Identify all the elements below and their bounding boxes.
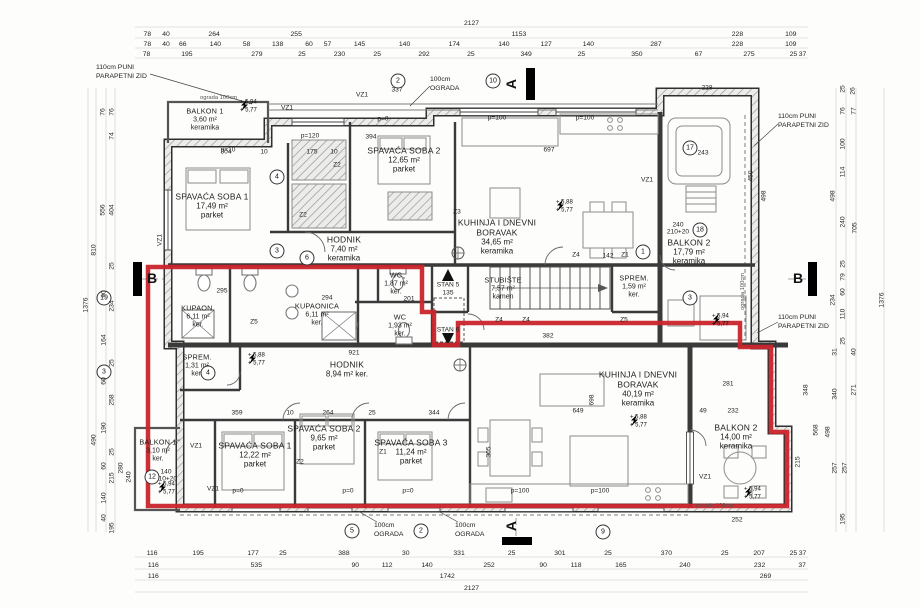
room-ar: 1,87 m² — [368, 280, 424, 288]
plan-label: 10 — [330, 149, 337, 156]
dimension-value: 60 — [840, 288, 847, 296]
plan-label: 697 — [543, 147, 554, 154]
dimension-value: 269 — [760, 573, 771, 580]
dimension-value: 77 — [851, 107, 858, 115]
plan-label: p=0 — [342, 488, 353, 495]
level-bolt-icon — [630, 415, 639, 427]
room-ar: 14,00 m² — [691, 433, 781, 442]
section-marker-a-top: A — [503, 79, 519, 89]
room-nm: BALKON 2 — [644, 238, 734, 248]
dimension-value: 25 — [467, 51, 475, 58]
dimension-value: 2127 — [464, 585, 479, 592]
dimension-value: 100 — [840, 138, 847, 149]
room-ar: 17,49 m² — [167, 202, 257, 211]
room-ar: 8,94 m² ker. — [302, 369, 392, 378]
plan-label: p=100 — [591, 488, 610, 495]
room-ar: 17,79 m² — [644, 248, 734, 257]
dimension-value: 140 — [498, 41, 509, 48]
plan-label: p=0 — [377, 116, 388, 123]
plan-label: VZ1 — [356, 92, 368, 99]
dimension-value: 109 — [785, 31, 796, 38]
dimension-value: 280 — [118, 462, 125, 473]
room-label: BALKON 13,60 m²keramika — [177, 107, 233, 132]
dimension-value: 112 — [382, 562, 393, 569]
section-marker-a-top-bar — [526, 68, 535, 100]
dimension-value: 25 — [840, 260, 847, 268]
dimension-value: 490 — [91, 434, 98, 445]
room-ar: 40,19 m² — [593, 390, 683, 399]
dimension-value: 90 — [101, 290, 108, 298]
plan-label: VZ1 — [281, 105, 293, 112]
annotation: 100cm OGRADA — [374, 522, 403, 540]
plan-label: 394 — [365, 134, 376, 141]
plan-label: Z2 — [299, 212, 307, 219]
plan-label: Z2 — [296, 459, 304, 466]
dimension-value: 404 — [109, 204, 116, 215]
room-label: SPREM.1,31 m²ker. — [169, 353, 225, 378]
room-fl: keramika — [593, 399, 683, 408]
dimension-value: 810 — [91, 244, 98, 255]
plan-label: 142 — [602, 253, 613, 260]
level-bolt-icon — [240, 100, 249, 112]
dimension-value: 190 — [101, 422, 108, 433]
position-circle: 2 — [414, 524, 429, 539]
room-nm: SPREM. — [606, 274, 662, 283]
position-circle: 18 — [693, 223, 708, 238]
dimension-value: 37 — [799, 51, 807, 58]
level-marker: + 5,94 + 5,77 — [744, 487, 761, 502]
room-label: SPAVAĆA SOBA 117,49 m²parket — [167, 192, 257, 221]
dimension-value: 40 — [162, 41, 170, 48]
level-bolt-icon — [712, 314, 721, 326]
room-label: SPAVAĆA SOBA 29,65 m²parket — [279, 424, 369, 453]
plan-label: 498 — [761, 190, 768, 201]
plan-label: 10 — [260, 149, 267, 156]
plan-label: 252 — [731, 517, 742, 524]
dimension-value: 60 — [101, 377, 108, 385]
dimension-value: 240 — [840, 216, 847, 227]
room-nm: WC — [372, 313, 428, 322]
room-fl: ker. — [130, 455, 186, 463]
dimension-value: 258 — [109, 394, 116, 405]
room-nm: KUHINJA I DNEVNI BORAVAK — [452, 218, 542, 238]
plan-label: 10 — [286, 410, 293, 417]
annotation: 100cm OGRADA — [455, 522, 484, 540]
dimension-value: 535 — [251, 562, 262, 569]
dimension-value: 25 — [373, 51, 381, 58]
room-fl: keramika — [177, 124, 233, 132]
level-marker: + 5,94 + 5,77 — [158, 482, 175, 497]
section-marker-b-right: B — [793, 270, 803, 286]
room-ar: 7,57 m² — [475, 285, 531, 293]
dimension-value: 1376 — [83, 297, 90, 312]
room-label: WC1,87 m²ker. — [368, 271, 424, 296]
dimension-value: 127 — [541, 41, 552, 48]
room-nm: WC — [368, 271, 424, 280]
room-label: STUBIŠTE7,57 m²kamen — [475, 276, 531, 301]
room-nm: SPAVAĆA SOBA 1 — [167, 192, 257, 202]
annotation: ograda 100cm — [740, 273, 748, 310]
dimension-value: 240 — [679, 562, 690, 569]
room-fl: kamen — [475, 293, 531, 301]
room-ar: 1,59 m² — [606, 283, 662, 291]
room-nm: BALKON 2 — [691, 423, 781, 433]
position-circle: 17 — [683, 141, 698, 156]
dimension-value: 349 — [521, 51, 532, 58]
dimension-value: 78 — [143, 51, 151, 58]
plan-label: 698 — [589, 394, 596, 405]
dimension-value: 230 — [334, 51, 345, 58]
dimension-value: 140 — [421, 562, 432, 569]
plan-label: VZ1 — [699, 474, 711, 481]
dimension-value: 240 — [126, 471, 133, 482]
dimension-value: 66 — [179, 41, 187, 48]
dimension-value: 25 — [279, 550, 287, 557]
room-nm: HODNIK — [299, 235, 389, 245]
room-label: BALKON 13,10 m²ker. — [130, 438, 186, 463]
dimension-value: 340 — [832, 388, 839, 399]
dimension-value: 568 — [813, 424, 820, 435]
dimension-value: 292 — [418, 51, 429, 58]
plan-label: 240 — [672, 222, 683, 229]
dimension-value: 74 — [109, 132, 116, 140]
plan-label: 359 — [231, 410, 242, 417]
dimension-value: 195 — [192, 550, 203, 557]
floorplan-page: BALKON 13,60 m²keramikaSPAVAĆA SOBA 117,… — [0, 0, 920, 609]
dimension-value: 26 — [850, 87, 857, 95]
room-nm: BALKON 1 — [130, 438, 186, 447]
plan-label: p=120 — [301, 133, 320, 140]
dimension-value: 60 — [305, 41, 313, 48]
dimension-value: 279 — [251, 51, 262, 58]
plan-label: 49 — [699, 408, 706, 415]
dimension-value: 25 — [109, 359, 116, 367]
room-fl: ker. — [372, 330, 428, 338]
level-bolt-icon — [158, 482, 167, 494]
plan-label: 228 — [701, 85, 712, 92]
section-marker-b-left-bar — [133, 262, 142, 296]
annotation: 110cm PUNI PARAPETNI ZID — [778, 314, 829, 332]
room-ar: 3,60 m² — [177, 116, 233, 124]
position-circle: 3 — [683, 291, 698, 306]
dimension-value: 164 — [101, 334, 108, 345]
plan-label: Z5 — [620, 317, 628, 324]
plan-label: 243 — [697, 150, 708, 157]
plan-label: p=100 — [511, 488, 530, 495]
room-nm: SPAVAĆA SOBA 2 — [279, 424, 369, 434]
dimension-value: 228 — [732, 41, 743, 48]
annotation: 110cm PUNI PARAPETNI ZID — [96, 64, 147, 82]
dimension-value: 140 — [210, 41, 221, 48]
plan-label: 294 — [321, 295, 332, 302]
annotation: ograda 100cm — [200, 95, 237, 103]
room-ar: 12,65 m² — [359, 156, 449, 165]
plan-label: Z1 — [621, 252, 629, 259]
position-circle: 2 — [391, 74, 406, 89]
room-ar: 1,31 m² — [169, 362, 225, 370]
level-marker: + 5,88 + 5,77 — [248, 353, 265, 368]
room-nm: KUHINJA I DNEVNI BORAVAK — [593, 370, 683, 390]
plan-label: 140 — [160, 469, 171, 476]
dimension-value: 40 — [851, 348, 858, 356]
room-fl: parket — [279, 443, 369, 452]
plan-label: 921 — [348, 350, 359, 357]
plan-label: 201 — [403, 296, 414, 303]
dimension-value: 2127 — [464, 20, 479, 27]
dimension-value: 331 — [453, 550, 464, 557]
dimension-value: 116 — [148, 562, 159, 569]
room-fl: keramika — [691, 442, 781, 451]
position-circle: 3 — [270, 244, 285, 259]
dimension-value: 57 — [324, 41, 332, 48]
dimension-value: 195 — [181, 51, 192, 58]
dimension-value: 25 — [721, 550, 729, 557]
dimension-value: 257 — [842, 462, 849, 473]
section-marker-a-bottom-bar — [502, 537, 532, 545]
room-ar: 9,65 m² — [279, 434, 369, 443]
plan-label: p=0 — [232, 488, 243, 495]
annotation: 100cm OGRADA — [430, 76, 459, 94]
room-fl: ker. — [169, 370, 225, 378]
plan-label: 175 — [306, 149, 317, 156]
dimension-value: 76 — [109, 108, 116, 116]
dimension-value: 498 — [825, 426, 832, 437]
dimension-value: 25 — [790, 51, 798, 58]
plan-label: 344 — [428, 410, 439, 417]
dimension-value: 174 — [449, 41, 460, 48]
dimension-value: 370 — [661, 550, 672, 557]
dimension-value: 1742 — [440, 573, 455, 580]
dimension-value: 25 — [790, 550, 798, 557]
level-bolt-icon — [744, 487, 753, 499]
level-marker: + 5,94 + 5,77 — [712, 314, 729, 329]
plan-label: STAN 5 — [437, 282, 460, 289]
room-nm: STUBIŠTE — [475, 276, 531, 285]
dimension-value: 234 — [830, 294, 837, 305]
dimension-value: 271 — [851, 384, 858, 395]
dimension-value: 40 — [162, 31, 170, 38]
dimension-value: 40 — [101, 514, 108, 522]
dimension-value: 90 — [351, 562, 359, 569]
dimension-value: 177 — [247, 550, 258, 557]
plan-text-layer: BALKON 13,60 m²keramikaSPAVAĆA SOBA 117,… — [0, 0, 920, 609]
dimension-value: 388 — [338, 550, 349, 557]
plan-label: Z4 — [495, 317, 503, 324]
dimension-value: 228 — [732, 31, 743, 38]
dimension-value: 350 — [631, 51, 642, 58]
level-marker: + 5,94 + 5,77 — [240, 100, 257, 115]
room-fl: parket — [210, 460, 300, 469]
dimension-value: 232 — [754, 562, 765, 569]
room-label: BALKON 217,79 m²keramika — [644, 238, 734, 267]
room-label: KUHINJA I DNEVNI BORAVAK34,65 m²keramika — [452, 218, 542, 257]
plan-label: STAN 6 — [437, 327, 460, 334]
position-circle: 6 — [300, 251, 315, 266]
dimension-value: 264 — [208, 31, 219, 38]
room-fl: keramika — [644, 257, 734, 266]
room-label: SPAVAĆA SOBA 212,65 m²parket — [359, 146, 449, 175]
plan-label: 305 — [486, 446, 493, 457]
dimension-value: 145 — [354, 41, 365, 48]
room-fl: ker. — [606, 291, 662, 299]
dimension-value: 498 — [830, 190, 837, 201]
dimension-value: 25 — [840, 85, 847, 93]
dimension-value: 556 — [100, 204, 107, 215]
dimension-value: 37 — [798, 562, 806, 569]
room-nm: SPAVAĆA SOBA 2 — [359, 146, 449, 156]
annotation: ograda 100cm — [696, 503, 733, 511]
level-marker: + 5,88 + 5,77 — [630, 415, 647, 430]
dimension-value: 287 — [650, 41, 661, 48]
room-label: KUPAONICA6,11 m²ker. — [289, 302, 345, 327]
dimension-value: 207 — [753, 550, 764, 557]
dimension-value: 25 — [109, 262, 116, 270]
dimension-value: 79 — [840, 273, 847, 281]
plan-label: 210+20 — [667, 229, 689, 236]
room-nm: KUPAON. — [170, 304, 226, 313]
dimension-value: 114 — [840, 167, 847, 178]
room-ar: 34,65 m² — [452, 238, 542, 247]
plan-label: Z4 — [522, 317, 530, 324]
room-fl: ker. — [289, 319, 345, 327]
room-label: KUPAON.6,11 m²ker. — [170, 304, 226, 329]
annotation: 110cm PUNI PARAPETNI ZID — [778, 113, 829, 131]
room-label: SPREM.1,59 m²ker. — [606, 274, 662, 299]
dimension-value: 195 — [109, 522, 116, 533]
dimension-value: 25 — [578, 51, 586, 58]
dimension-value: 215 — [109, 472, 116, 483]
dimension-value: 705 — [852, 222, 859, 233]
plan-label: 135 — [442, 290, 453, 297]
section-marker-a-bottom: A — [503, 521, 519, 531]
position-circle: 5 — [345, 524, 360, 539]
section-marker-b-left: B — [147, 270, 157, 286]
dimension-value: 252 — [483, 562, 494, 569]
room-fl: parket — [167, 211, 257, 220]
position-circle: 9 — [596, 525, 611, 540]
room-label: BALKON 214,00 m²keramika — [691, 423, 781, 452]
plan-label: 281 — [722, 381, 733, 388]
room-nm: SPAVAĆA SOBA 3 — [366, 438, 456, 448]
plan-label: Z1 — [379, 449, 387, 456]
dimension-value: 1153 — [512, 31, 527, 38]
room-nm: HODNIK — [302, 359, 392, 369]
plan-label: 232 — [727, 408, 738, 415]
dimension-value: 76 — [100, 108, 107, 116]
plan-label: 295 — [216, 288, 227, 295]
room-ar: 6,11 m² — [170, 313, 226, 321]
dimension-value: 67 — [695, 51, 703, 58]
level-bolt-icon — [248, 353, 257, 365]
dimension-value: 25 — [109, 448, 116, 456]
dimension-value: 195 — [840, 513, 847, 524]
dimension-value: 31 — [832, 348, 839, 356]
plan-label: 649 — [572, 408, 583, 415]
dimension-value: 140 — [583, 41, 594, 48]
dimension-value: 25 — [604, 550, 612, 557]
plan-label: 450 — [748, 170, 755, 181]
plan-label: Z4 — [572, 252, 580, 259]
room-fl: parket — [359, 165, 449, 174]
dimension-value: 37 — [799, 550, 807, 557]
room-ar: 1,93 m² — [372, 322, 428, 330]
plan-label: VZ1 — [157, 234, 164, 246]
plan-label: Z3 — [453, 209, 461, 216]
dimension-value: 118 — [571, 562, 582, 569]
plan-label: 264 — [322, 410, 333, 417]
room-nm: KUPAONICA — [289, 302, 345, 311]
dimension-value: 25 — [840, 337, 847, 345]
dimension-value: 275 — [743, 51, 754, 58]
room-label: WC1,93 m²ker. — [372, 313, 428, 338]
room-nm: BALKON 1 — [177, 107, 233, 116]
dimension-value: 110 — [840, 309, 847, 320]
room-fl: keramika — [452, 247, 542, 256]
dimension-value: 60 — [101, 462, 108, 470]
room-fl: ker. — [368, 288, 424, 296]
dimension-value: 30 — [402, 550, 410, 557]
dimension-value: 58 — [243, 41, 251, 48]
dimension-value: 140 — [101, 492, 108, 503]
plan-label: p=0 — [402, 488, 413, 495]
dimension-value: 116 — [147, 550, 158, 557]
dimension-value: 234 — [109, 300, 116, 311]
dimension-value: 78 — [144, 31, 152, 38]
plan-label: 25 — [368, 410, 375, 417]
dimension-value: 215 — [795, 456, 802, 467]
position-circle: 10 — [486, 74, 501, 89]
dimension-value: 76 — [840, 107, 847, 115]
room-ar: 6,11 m² — [289, 311, 345, 319]
section-marker-b-right-bar — [808, 262, 817, 296]
position-circle: 1 — [636, 245, 651, 260]
dimension-value: 348 — [803, 384, 810, 395]
room-ar: 3,10 m² — [130, 447, 186, 455]
plan-label: p=10 — [221, 147, 236, 154]
level-marker: + 5,88 + 5,77 — [556, 200, 573, 215]
plan-label: p=100 — [576, 115, 595, 122]
plan-label: VZ1 — [190, 443, 202, 450]
plan-label: p=100 — [488, 115, 507, 122]
position-circle: 4 — [270, 170, 285, 185]
dimension-value: 25 — [508, 550, 516, 557]
plan-label: 382 — [542, 333, 553, 340]
dimension-value: 138 — [272, 41, 283, 48]
room-label: KUHINJA I DNEVNI BORAVAK40,19 m²keramika — [593, 370, 683, 409]
dimension-value: 90 — [539, 562, 547, 569]
dimension-value: 116 — [148, 573, 159, 580]
dimension-value: 78 — [144, 41, 152, 48]
room-label: HODNIK8,94 m² ker. — [302, 359, 392, 378]
room-fl: ker. — [170, 321, 226, 329]
plan-label: VZ1 — [207, 486, 219, 493]
plan-label: Z2 — [333, 162, 341, 169]
dimension-value: 25 — [298, 51, 306, 58]
plan-label: Z5 — [250, 319, 258, 326]
dimension-value: 257 — [832, 462, 839, 473]
room-nm: SPREM. — [169, 353, 225, 362]
dimension-value: 140 — [399, 41, 410, 48]
level-bolt-icon — [556, 200, 565, 212]
dimension-value: 301 — [554, 550, 565, 557]
room-fl: parket — [366, 457, 456, 466]
plan-label: VZ1 — [641, 177, 653, 184]
dimension-value: 109 — [785, 41, 796, 48]
dimension-value: 255 — [291, 31, 302, 38]
position-circle: 4 — [201, 366, 216, 381]
dimension-value: 1376 — [879, 292, 886, 307]
dimension-value: 165 — [615, 562, 626, 569]
